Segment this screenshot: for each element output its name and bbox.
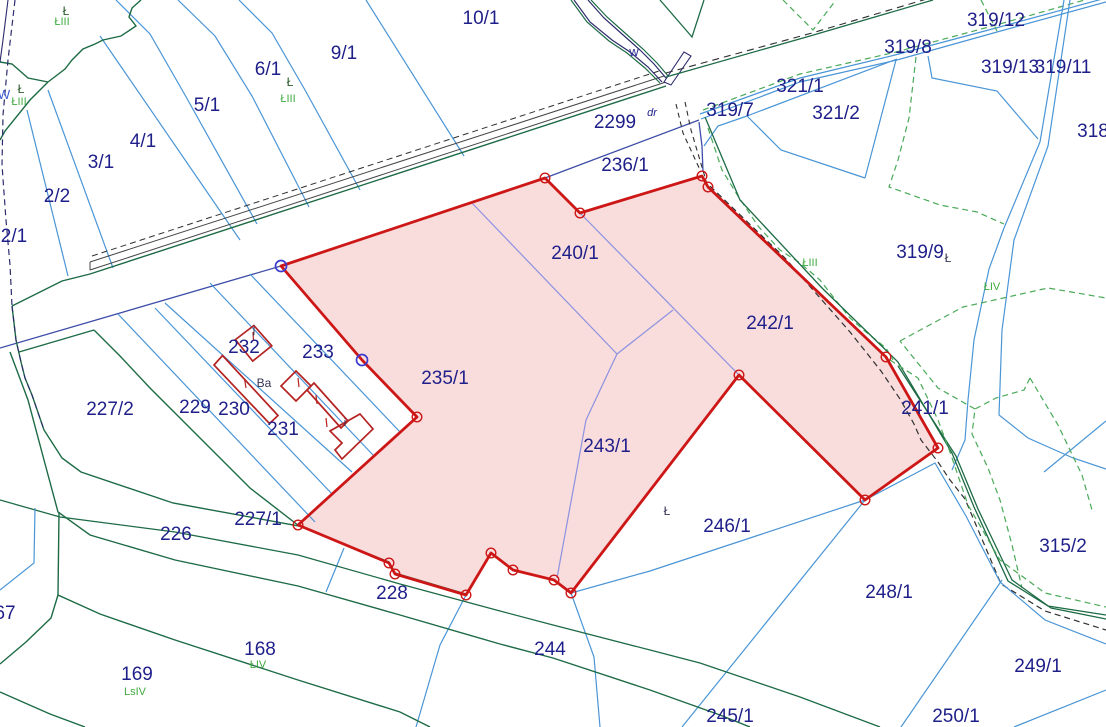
svg-text:j: j: [252, 324, 255, 336]
svg-text:319/13: 319/13: [981, 57, 1039, 78]
svg-text:ŁIII: ŁIII: [802, 257, 817, 269]
svg-text:169: 169: [121, 664, 153, 685]
svg-text:3/1: 3/1: [88, 152, 114, 173]
svg-text:229: 229: [179, 397, 211, 418]
svg-text:231: 231: [267, 419, 299, 440]
svg-text:Ł: Ł: [287, 75, 294, 89]
svg-text:244: 244: [534, 639, 566, 660]
svg-text:w: w: [628, 44, 639, 59]
svg-text:315/2: 315/2: [1039, 536, 1087, 557]
svg-text:2/1: 2/1: [1, 226, 27, 247]
svg-text:ŁIV: ŁIV: [250, 659, 267, 671]
svg-text:249/1: 249/1: [1014, 656, 1062, 677]
svg-text:9/1: 9/1: [331, 43, 357, 64]
svg-text:319/8: 319/8: [884, 37, 932, 58]
svg-text:240/1: 240/1: [551, 243, 599, 264]
svg-text:ŁIII: ŁIII: [280, 93, 295, 105]
svg-text:2299: 2299: [594, 112, 636, 133]
svg-text:245/1: 245/1: [706, 706, 754, 727]
svg-text:W: W: [0, 87, 11, 102]
svg-text:dr: dr: [647, 107, 658, 119]
svg-text:ŁIV: ŁIV: [984, 281, 1001, 293]
svg-text:241/1: 241/1: [901, 398, 949, 419]
svg-text:ŁIII: ŁIII: [11, 96, 26, 108]
svg-text:319/11: 319/11: [1035, 57, 1092, 78]
svg-text:230: 230: [218, 399, 250, 420]
svg-text:227/1: 227/1: [234, 509, 282, 530]
svg-text:226: 226: [160, 524, 192, 545]
svg-text:i: i: [344, 417, 346, 429]
svg-text:243/1: 243/1: [583, 436, 631, 457]
svg-text:228: 228: [376, 583, 408, 604]
svg-text:319/9: 319/9: [896, 242, 944, 263]
svg-text:2/2: 2/2: [44, 186, 70, 207]
svg-text:321/1: 321/1: [776, 76, 824, 97]
svg-text:Ł: Ł: [18, 82, 25, 96]
svg-text:67: 67: [0, 603, 16, 624]
svg-text:318: 318: [1077, 121, 1106, 142]
svg-text:227/2: 227/2: [86, 399, 134, 420]
svg-text:6/1: 6/1: [255, 59, 281, 80]
svg-text:236/1: 236/1: [601, 155, 649, 176]
svg-text:319/12: 319/12: [967, 10, 1025, 31]
svg-text:Ba: Ba: [257, 376, 272, 390]
svg-text:232: 232: [228, 337, 260, 358]
svg-text:248/1: 248/1: [865, 582, 913, 603]
svg-text:10/1: 10/1: [463, 8, 500, 29]
svg-text:5/1: 5/1: [194, 95, 220, 116]
svg-text:Ł: Ł: [664, 504, 671, 518]
svg-text:ŁIII: ŁIII: [54, 16, 69, 28]
svg-text:168: 168: [244, 639, 276, 660]
svg-text:321/2: 321/2: [812, 103, 860, 124]
svg-text:250/1: 250/1: [932, 706, 980, 727]
svg-text:233: 233: [302, 342, 334, 363]
svg-text:242/1: 242/1: [746, 313, 794, 334]
svg-text:4/1: 4/1: [130, 131, 156, 152]
svg-text:319/7: 319/7: [706, 100, 754, 121]
svg-text:246/1: 246/1: [703, 516, 751, 537]
svg-text:LsIV: LsIV: [124, 686, 147, 698]
svg-text:Ł: Ł: [945, 251, 952, 265]
svg-text:235/1: 235/1: [421, 368, 469, 389]
